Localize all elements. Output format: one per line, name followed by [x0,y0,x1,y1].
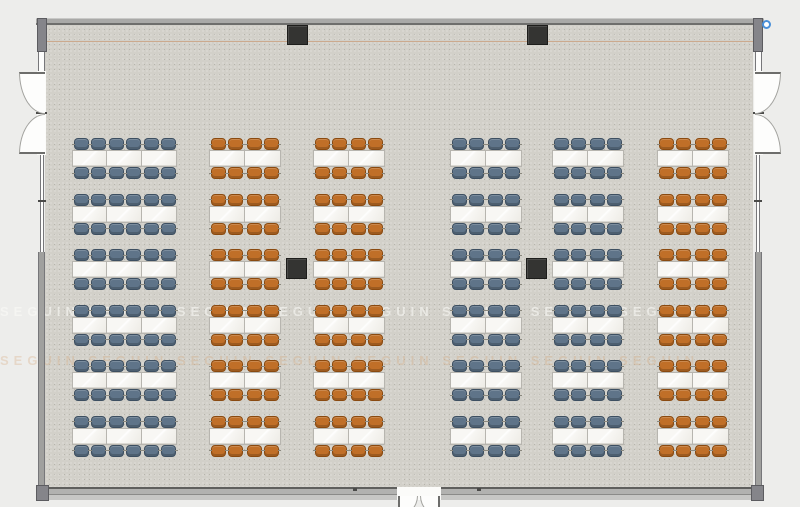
chair-orange[interactable] [211,360,226,372]
table[interactable] [692,150,729,167]
wall-corner-post-bottom-left[interactable] [36,485,49,501]
chair-orange[interactable] [315,278,330,290]
chair-orange[interactable] [264,249,279,261]
chair-blue[interactable] [74,305,89,317]
chair-blue[interactable] [554,278,569,290]
table-group-column-2-row-6[interactable] [209,415,281,458]
table[interactable] [72,372,107,389]
table[interactable] [313,372,349,389]
table[interactable] [313,261,349,278]
chair-blue[interactable] [505,334,520,346]
chair-blue[interactable] [452,223,467,235]
chair-orange[interactable] [264,138,279,150]
table[interactable] [348,317,385,334]
table[interactable] [72,428,107,445]
chair-orange[interactable] [315,223,330,235]
door-leaf-right-lower[interactable] [755,114,781,154]
door-leaf-bottom-left[interactable] [398,496,418,507]
table-group-column-4-row-5[interactable] [450,359,522,402]
table[interactable] [244,372,281,389]
chair-orange[interactable] [368,278,383,290]
chair-blue[interactable] [109,416,124,428]
table-group-column-3-row-2[interactable] [313,193,385,236]
table-group-column-2-row-3[interactable] [209,248,281,291]
chair-orange[interactable] [659,389,674,401]
chair-blue[interactable] [469,416,484,428]
chair-orange[interactable] [695,278,710,290]
chair-orange[interactable] [332,167,347,179]
table-group-column-1-row-5[interactable] [72,359,177,402]
chair-orange[interactable] [228,167,243,179]
chair-blue[interactable] [144,445,159,457]
table[interactable] [587,261,624,278]
table-group-column-5-row-5[interactable] [552,359,624,402]
chair-orange[interactable] [264,445,279,457]
pillar[interactable] [527,25,548,45]
chair-blue[interactable] [488,278,503,290]
chair-orange[interactable] [695,334,710,346]
table-group-column-6-row-1[interactable] [657,137,729,180]
table-group-column-4-row-4[interactable] [450,304,522,347]
pillar[interactable] [286,258,307,279]
chair-orange[interactable] [264,305,279,317]
chair-orange[interactable] [247,305,262,317]
chair-blue[interactable] [590,389,605,401]
table[interactable] [485,428,522,445]
chair-blue[interactable] [505,223,520,235]
table[interactable] [485,261,522,278]
chair-orange[interactable] [211,223,226,235]
chair-orange[interactable] [315,305,330,317]
chair-orange[interactable] [368,360,383,372]
table[interactable] [587,206,624,223]
chair-orange[interactable] [228,305,243,317]
chair-blue[interactable] [91,138,106,150]
chair-blue[interactable] [607,360,622,372]
chair-blue[interactable] [91,389,106,401]
chair-blue[interactable] [469,167,484,179]
chair-orange[interactable] [351,167,366,179]
chair-blue[interactable] [607,389,622,401]
chair-orange[interactable] [695,445,710,457]
chair-orange[interactable] [351,334,366,346]
table[interactable] [106,372,142,389]
chair-blue[interactable] [488,138,503,150]
chair-orange[interactable] [332,334,347,346]
table[interactable] [450,372,486,389]
chair-blue[interactable] [554,249,569,261]
chair-orange[interactable] [211,194,226,206]
table[interactable] [141,150,177,167]
table-group-column-2-row-2[interactable] [209,193,281,236]
table-group-column-3-row-6[interactable] [313,415,385,458]
chair-blue[interactable] [571,360,586,372]
chair-blue[interactable] [607,194,622,206]
window-right-lower[interactable] [756,155,760,252]
chair-blue[interactable] [452,278,467,290]
chair-orange[interactable] [712,416,727,428]
table[interactable] [209,150,245,167]
table[interactable] [552,428,588,445]
chair-orange[interactable] [368,138,383,150]
chair-orange[interactable] [228,389,243,401]
chair-blue[interactable] [144,278,159,290]
chair-blue[interactable] [505,445,520,457]
chair-orange[interactable] [695,167,710,179]
chair-blue[interactable] [144,223,159,235]
chair-blue[interactable] [91,416,106,428]
chair-blue[interactable] [607,223,622,235]
chair-blue[interactable] [109,138,124,150]
table-group-column-4-row-2[interactable] [450,193,522,236]
chair-orange[interactable] [228,416,243,428]
chair-orange[interactable] [247,445,262,457]
chair-orange[interactable] [315,445,330,457]
chair-orange[interactable] [659,334,674,346]
chair-orange[interactable] [332,416,347,428]
table[interactable] [72,317,107,334]
chair-orange[interactable] [676,249,691,261]
chair-blue[interactable] [554,138,569,150]
window-left-upper[interactable] [38,52,45,72]
chair-orange[interactable] [264,416,279,428]
table-group-column-5-row-1[interactable] [552,137,624,180]
table[interactable] [244,206,281,223]
table[interactable] [692,261,729,278]
table[interactable] [141,317,177,334]
chair-blue[interactable] [452,305,467,317]
chair-orange[interactable] [695,223,710,235]
chair-orange[interactable] [368,167,383,179]
table[interactable] [485,150,522,167]
chair-orange[interactable] [211,389,226,401]
chair-blue[interactable] [452,389,467,401]
chair-blue[interactable] [161,249,176,261]
chair-orange[interactable] [228,445,243,457]
table-group-column-2-row-1[interactable] [209,137,281,180]
chair-orange[interactable] [211,445,226,457]
chair-blue[interactable] [144,138,159,150]
chair-blue[interactable] [571,167,586,179]
chair-orange[interactable] [228,223,243,235]
table-group-column-3-row-4[interactable] [313,304,385,347]
table[interactable] [209,261,245,278]
chair-blue[interactable] [607,278,622,290]
chair-orange[interactable] [712,445,727,457]
chair-blue[interactable] [554,223,569,235]
chair-orange[interactable] [351,278,366,290]
table[interactable] [450,261,486,278]
table[interactable] [552,150,588,167]
chair-blue[interactable] [590,416,605,428]
chair-blue[interactable] [91,305,106,317]
chair-orange[interactable] [264,389,279,401]
chair-orange[interactable] [351,445,366,457]
table[interactable] [209,372,245,389]
chair-blue[interactable] [571,138,586,150]
chair-orange[interactable] [676,445,691,457]
chair-orange[interactable] [351,194,366,206]
table[interactable] [450,428,486,445]
table-group-column-2-row-4[interactable] [209,304,281,347]
chair-orange[interactable] [211,305,226,317]
chair-blue[interactable] [452,334,467,346]
table[interactable] [692,372,729,389]
wall-left-solid[interactable] [38,252,45,487]
table[interactable] [209,317,245,334]
chair-blue[interactable] [571,305,586,317]
chair-orange[interactable] [368,194,383,206]
table-group-column-2-row-5[interactable] [209,359,281,402]
chair-blue[interactable] [607,334,622,346]
chair-blue[interactable] [554,360,569,372]
chair-blue[interactable] [469,249,484,261]
chair-blue[interactable] [505,249,520,261]
chair-blue[interactable] [161,278,176,290]
chair-orange[interactable] [264,167,279,179]
chair-blue[interactable] [161,334,176,346]
chair-blue[interactable] [590,445,605,457]
chair-blue[interactable] [161,360,176,372]
chair-orange[interactable] [211,249,226,261]
chair-blue[interactable] [607,167,622,179]
chair-orange[interactable] [247,249,262,261]
chair-blue[interactable] [488,223,503,235]
table[interactable] [141,206,177,223]
chair-blue[interactable] [488,334,503,346]
chair-orange[interactable] [368,305,383,317]
door-leaf-left-upper[interactable] [19,72,45,114]
chair-orange[interactable] [315,167,330,179]
chair-orange[interactable] [315,249,330,261]
chair-blue[interactable] [74,167,89,179]
chair-blue[interactable] [161,305,176,317]
chair-orange[interactable] [315,194,330,206]
chair-orange[interactable] [211,278,226,290]
table[interactable] [485,372,522,389]
chair-orange[interactable] [228,334,243,346]
table[interactable] [348,150,385,167]
table[interactable] [313,150,349,167]
chair-orange[interactable] [247,167,262,179]
chair-blue[interactable] [74,416,89,428]
chair-blue[interactable] [144,334,159,346]
chair-orange[interactable] [712,305,727,317]
chair-blue[interactable] [505,167,520,179]
chair-blue[interactable] [571,445,586,457]
chair-blue[interactable] [469,223,484,235]
chair-blue[interactable] [469,194,484,206]
chair-orange[interactable] [712,389,727,401]
table-group-column-5-row-6[interactable] [552,415,624,458]
table-group-column-1-row-4[interactable] [72,304,177,347]
wall-right-solid[interactable] [755,252,762,487]
table[interactable] [72,150,107,167]
chair-orange[interactable] [695,416,710,428]
chair-blue[interactable] [109,167,124,179]
chair-blue[interactable] [571,249,586,261]
table[interactable] [106,428,142,445]
chair-blue[interactable] [126,305,141,317]
table-group-column-1-row-1[interactable] [72,137,177,180]
table[interactable] [313,317,349,334]
chair-blue[interactable] [452,194,467,206]
chair-blue[interactable] [505,194,520,206]
table[interactable] [450,206,486,223]
chair-orange[interactable] [676,194,691,206]
chair-blue[interactable] [109,445,124,457]
table[interactable] [106,150,142,167]
chair-blue[interactable] [91,194,106,206]
chair-blue[interactable] [161,389,176,401]
chair-blue[interactable] [607,138,622,150]
chair-orange[interactable] [332,223,347,235]
chair-orange[interactable] [351,249,366,261]
chair-orange[interactable] [247,389,262,401]
chair-blue[interactable] [144,305,159,317]
chair-blue[interactable] [488,389,503,401]
table[interactable] [244,428,281,445]
table[interactable] [552,261,588,278]
table-group-column-1-row-2[interactable] [72,193,177,236]
chair-orange[interactable] [332,194,347,206]
chair-blue[interactable] [452,138,467,150]
wall-top[interactable] [36,18,764,25]
chair-orange[interactable] [676,389,691,401]
chair-blue[interactable] [74,278,89,290]
window-right-upper[interactable] [755,52,762,72]
chair-blue[interactable] [74,223,89,235]
chair-blue[interactable] [144,194,159,206]
chair-blue[interactable] [144,360,159,372]
table-group-column-3-row-5[interactable] [313,359,385,402]
table[interactable] [209,206,245,223]
table-group-column-6-row-5[interactable] [657,359,729,402]
chair-blue[interactable] [109,223,124,235]
chair-blue[interactable] [126,445,141,457]
chair-orange[interactable] [712,278,727,290]
table[interactable] [552,206,588,223]
table[interactable] [348,372,385,389]
chair-orange[interactable] [695,138,710,150]
chair-blue[interactable] [488,194,503,206]
pillar[interactable] [287,25,308,45]
chair-blue[interactable] [505,138,520,150]
window-left-lower[interactable] [40,155,44,252]
table[interactable] [72,261,107,278]
chair-orange[interactable] [712,194,727,206]
chair-blue[interactable] [126,167,141,179]
table[interactable] [657,372,693,389]
table[interactable] [587,150,624,167]
table[interactable] [106,317,142,334]
chair-blue[interactable] [452,249,467,261]
chair-blue[interactable] [161,416,176,428]
chair-blue[interactable] [91,334,106,346]
chair-orange[interactable] [351,416,366,428]
chair-blue[interactable] [469,334,484,346]
chair-blue[interactable] [452,360,467,372]
chair-blue[interactable] [590,305,605,317]
chair-blue[interactable] [469,389,484,401]
chair-blue[interactable] [126,194,141,206]
chair-orange[interactable] [659,305,674,317]
chair-orange[interactable] [659,167,674,179]
table[interactable] [587,317,624,334]
chair-blue[interactable] [607,445,622,457]
chair-orange[interactable] [712,167,727,179]
table[interactable] [450,150,486,167]
table[interactable] [209,428,245,445]
chair-blue[interactable] [126,360,141,372]
chair-blue[interactable] [590,278,605,290]
chair-blue[interactable] [571,278,586,290]
chair-blue[interactable] [554,389,569,401]
door-leaf-left-lower[interactable] [19,114,45,154]
chair-blue[interactable] [161,194,176,206]
chair-blue[interactable] [505,389,520,401]
chair-orange[interactable] [211,167,226,179]
chair-blue[interactable] [74,360,89,372]
table[interactable] [657,428,693,445]
chair-blue[interactable] [607,249,622,261]
table[interactable] [313,206,349,223]
chair-blue[interactable] [554,194,569,206]
chair-blue[interactable] [91,249,106,261]
chair-orange[interactable] [676,278,691,290]
chair-blue[interactable] [554,167,569,179]
chair-orange[interactable] [659,445,674,457]
chair-orange[interactable] [351,360,366,372]
chair-orange[interactable] [247,138,262,150]
table[interactable] [244,261,281,278]
chair-orange[interactable] [368,334,383,346]
table[interactable] [552,317,588,334]
table[interactable] [485,206,522,223]
chair-blue[interactable] [469,278,484,290]
chair-blue[interactable] [590,167,605,179]
chair-blue[interactable] [607,416,622,428]
table[interactable] [106,206,142,223]
table-group-column-4-row-6[interactable] [450,415,522,458]
table[interactable] [141,372,177,389]
chair-blue[interactable] [74,445,89,457]
chair-orange[interactable] [247,223,262,235]
chair-orange[interactable] [351,389,366,401]
chair-orange[interactable] [695,389,710,401]
chair-blue[interactable] [91,278,106,290]
chair-blue[interactable] [554,305,569,317]
chair-blue[interactable] [571,334,586,346]
table[interactable] [450,317,486,334]
chair-orange[interactable] [264,278,279,290]
chair-blue[interactable] [488,416,503,428]
table[interactable] [587,428,624,445]
chair-orange[interactable] [332,389,347,401]
chair-orange[interactable] [247,194,262,206]
chair-blue[interactable] [109,249,124,261]
chair-orange[interactable] [332,305,347,317]
chair-orange[interactable] [351,138,366,150]
table[interactable] [657,150,693,167]
chair-blue[interactable] [109,305,124,317]
table[interactable] [692,317,729,334]
chair-orange[interactable] [228,360,243,372]
chair-orange[interactable] [247,360,262,372]
chair-blue[interactable] [590,138,605,150]
chair-blue[interactable] [161,223,176,235]
chair-blue[interactable] [452,445,467,457]
